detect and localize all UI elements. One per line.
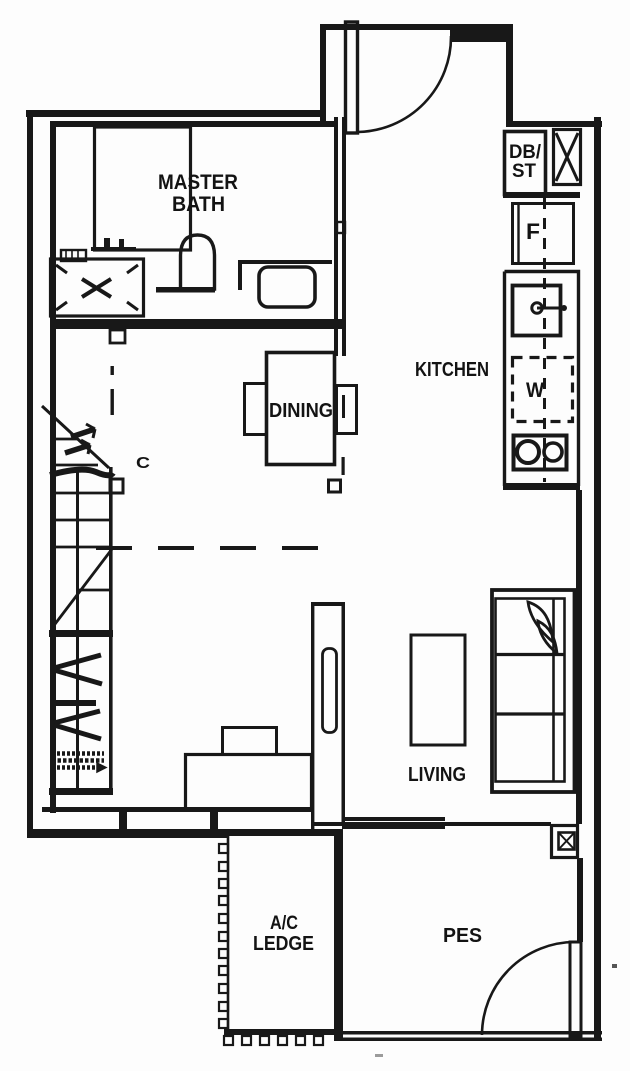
svg-text:A/C: A/C bbox=[270, 913, 298, 934]
svg-text:C: C bbox=[136, 455, 151, 472]
svg-text:KITCHEN: KITCHEN bbox=[415, 359, 489, 381]
svg-text:F: F bbox=[526, 219, 540, 244]
svg-text:ST: ST bbox=[512, 161, 536, 182]
svg-text:LEDGE: LEDGE bbox=[253, 933, 314, 955]
svg-text:BATH: BATH bbox=[172, 193, 225, 216]
svg-text:PES: PES bbox=[443, 925, 482, 947]
svg-text:LIVING: LIVING bbox=[408, 764, 466, 786]
svg-text:DINING: DINING bbox=[269, 400, 333, 422]
svg-text:MASTER: MASTER bbox=[158, 171, 238, 194]
svg-text:DB/: DB/ bbox=[509, 142, 542, 163]
svg-text:W: W bbox=[526, 379, 544, 402]
